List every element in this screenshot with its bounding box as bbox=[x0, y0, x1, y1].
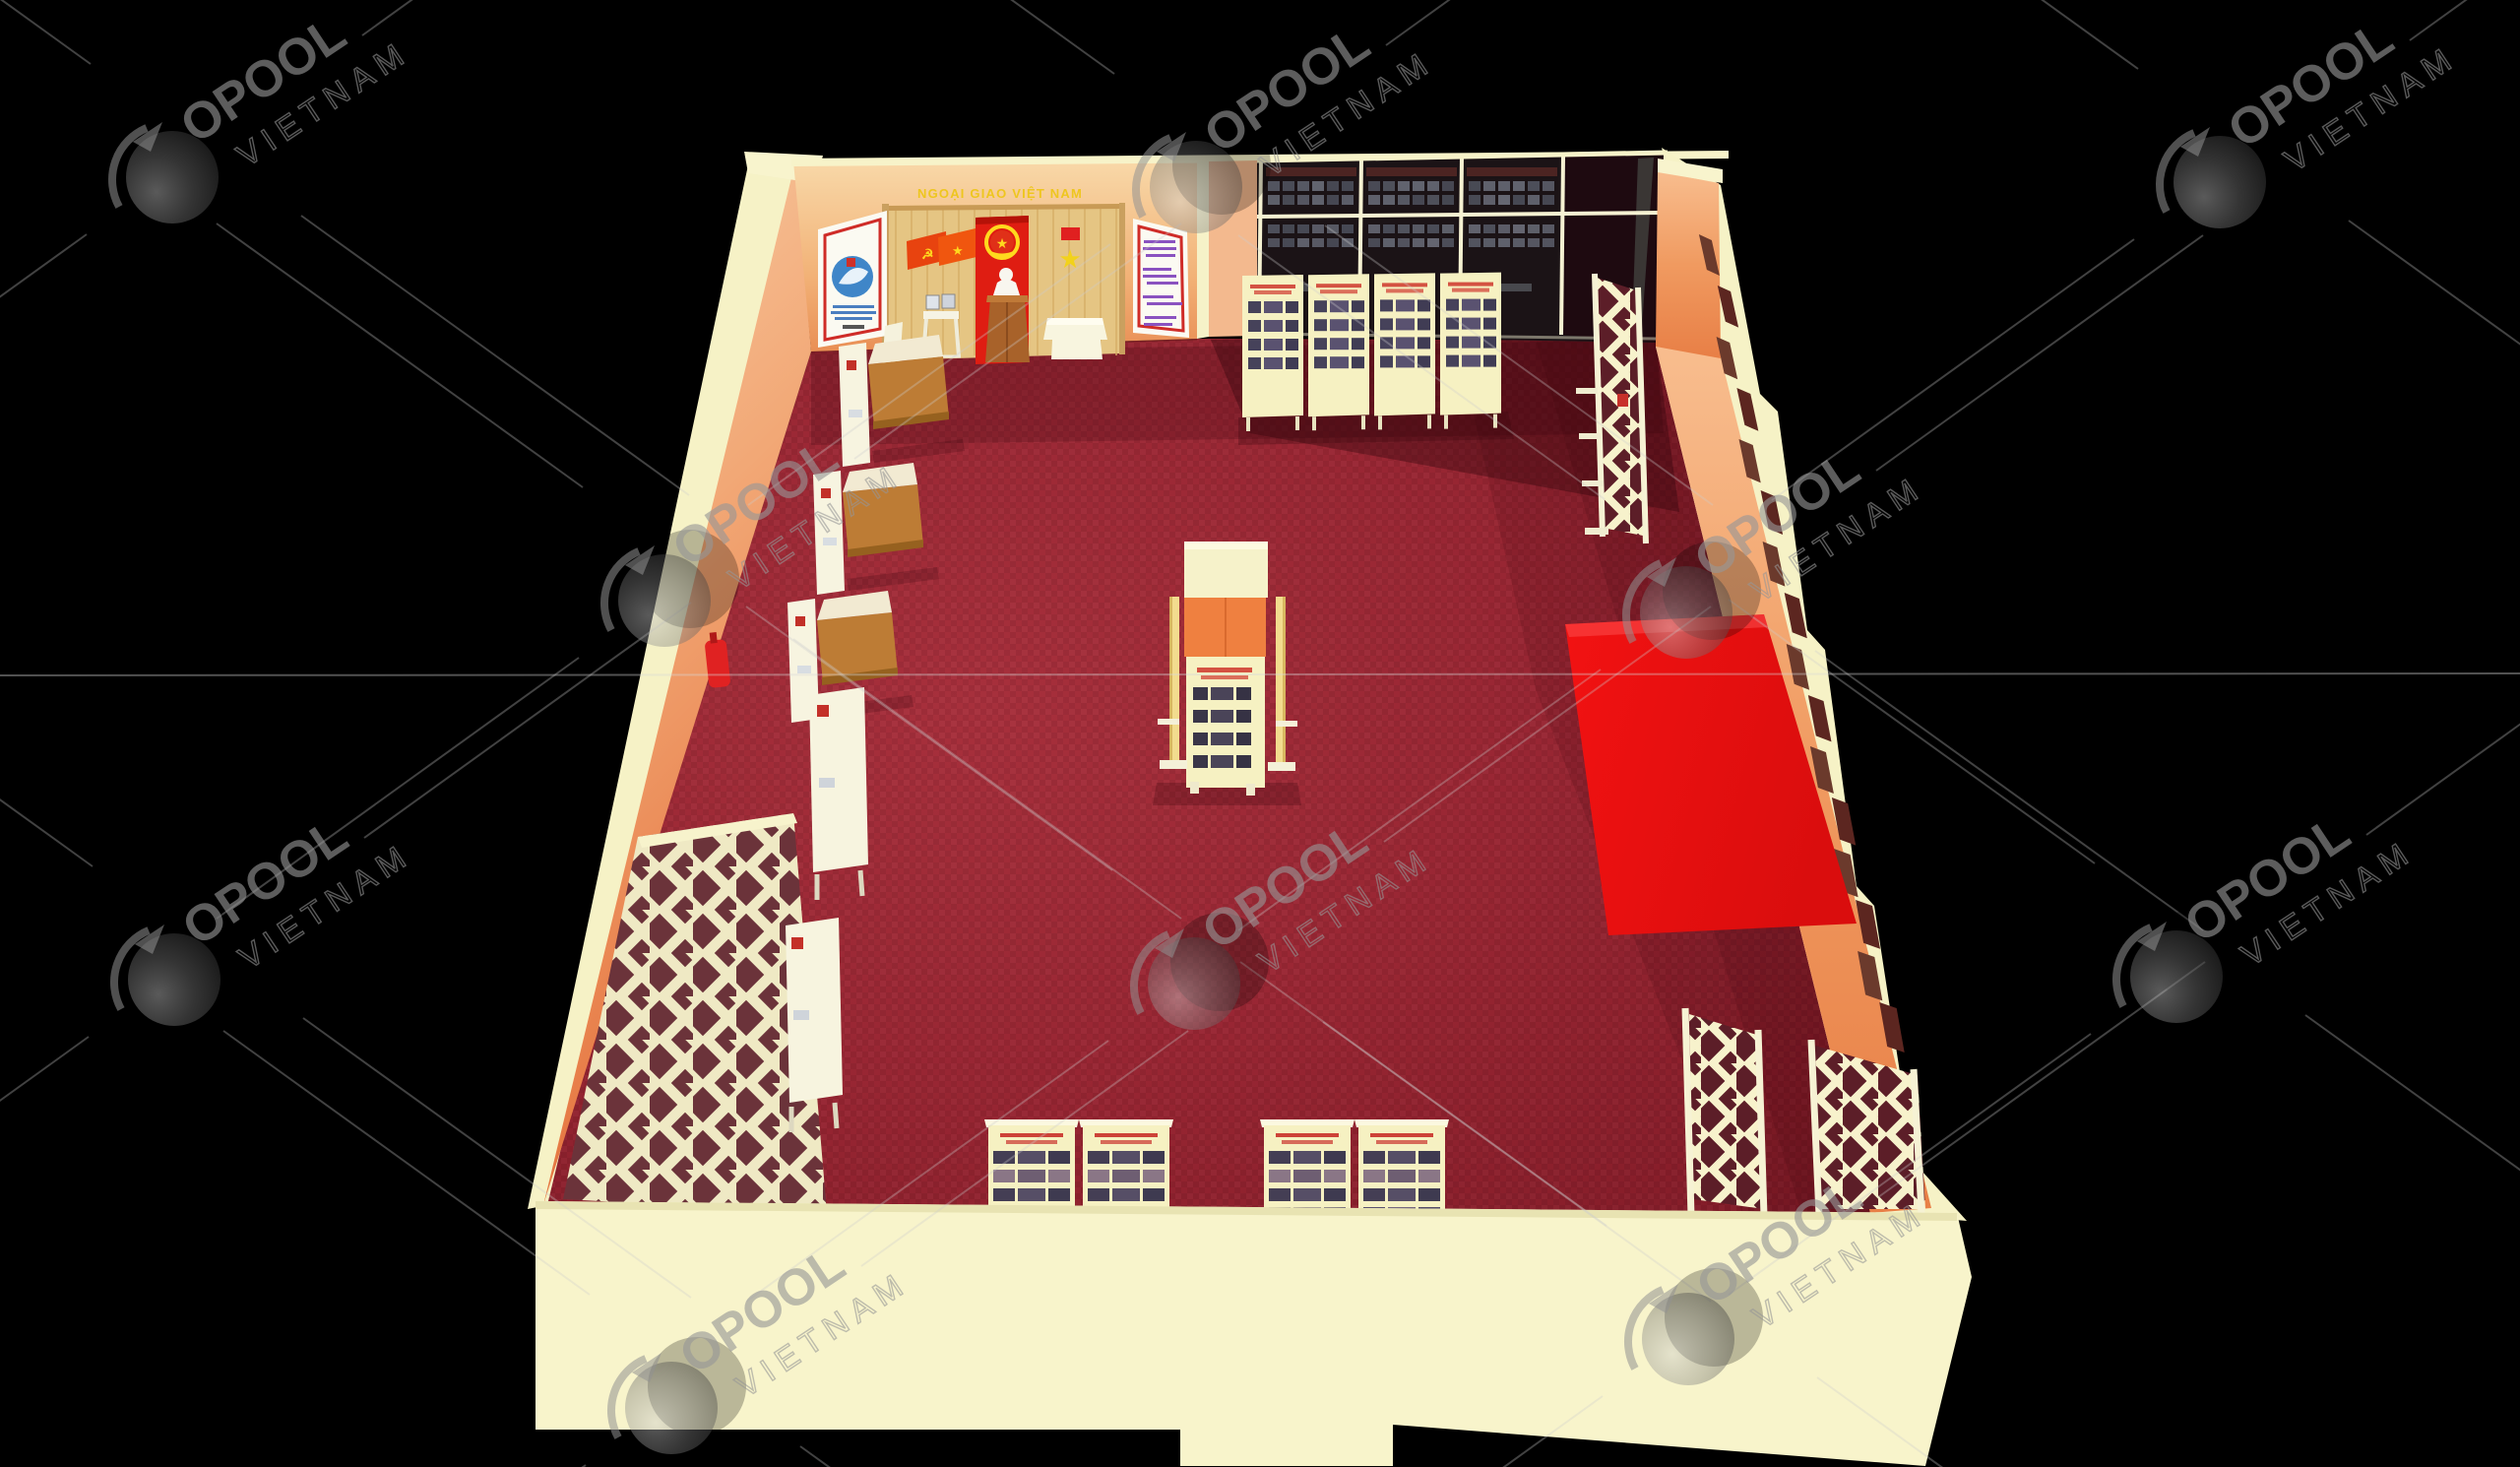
svg-text:★: ★ bbox=[996, 235, 1009, 251]
svg-text:★: ★ bbox=[952, 243, 964, 258]
svg-text:NGOẠI GIAO VIỆT NAM: NGOẠI GIAO VIỆT NAM bbox=[917, 186, 1083, 201]
svg-text:★: ★ bbox=[1058, 244, 1081, 274]
svg-text:☭: ☭ bbox=[921, 246, 934, 262]
